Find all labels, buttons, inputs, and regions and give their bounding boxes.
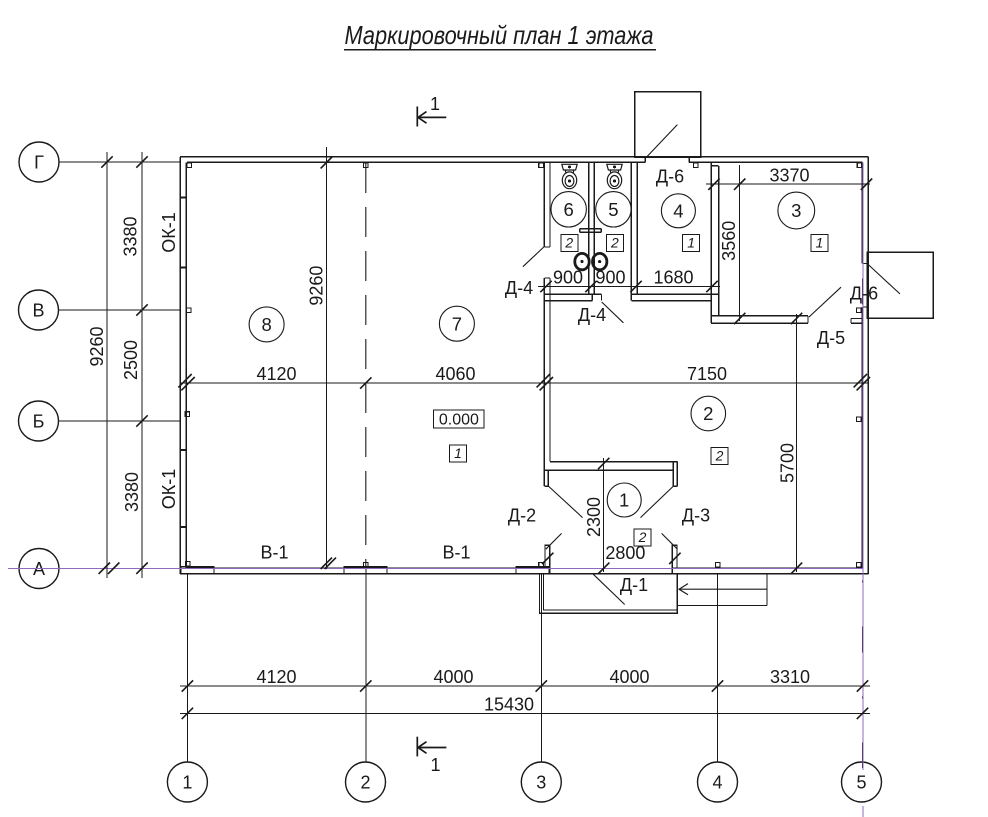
svg-text:1: 1 bbox=[430, 755, 440, 775]
svg-text:Г: Г bbox=[34, 153, 44, 173]
svg-text:4: 4 bbox=[712, 773, 722, 793]
svg-text:1: 1 bbox=[619, 490, 629, 511]
svg-text:1: 1 bbox=[816, 234, 824, 250]
svg-text:5700: 5700 bbox=[778, 443, 798, 483]
svg-text:1: 1 bbox=[430, 94, 440, 114]
svg-text:ОК-1: ОК-1 bbox=[159, 469, 179, 510]
svg-text:2: 2 bbox=[703, 403, 713, 424]
svg-text:Д-5: Д-5 bbox=[817, 328, 845, 348]
svg-text:Д-4: Д-4 bbox=[505, 278, 533, 298]
svg-text:7: 7 bbox=[452, 313, 462, 334]
svg-text:А: А bbox=[33, 559, 45, 579]
svg-text:2: 2 bbox=[638, 529, 647, 545]
svg-text:1: 1 bbox=[454, 445, 462, 461]
svg-text:4000: 4000 bbox=[609, 667, 649, 687]
svg-text:Д-6: Д-6 bbox=[850, 284, 878, 304]
svg-text:2: 2 bbox=[715, 448, 724, 464]
svg-text:5: 5 bbox=[856, 773, 866, 793]
svg-text:15430: 15430 bbox=[484, 695, 534, 715]
svg-text:900: 900 bbox=[553, 268, 583, 288]
svg-text:Д-1: Д-1 bbox=[620, 575, 648, 595]
svg-text:3380: 3380 bbox=[122, 472, 142, 512]
svg-text:5: 5 bbox=[608, 199, 618, 220]
svg-text:В: В bbox=[32, 301, 44, 321]
svg-text:3: 3 bbox=[791, 200, 801, 221]
svg-text:Д-2: Д-2 bbox=[508, 506, 536, 526]
svg-text:Д-3: Д-3 bbox=[682, 506, 710, 526]
svg-text:Д-4: Д-4 bbox=[578, 305, 606, 325]
svg-text:Б: Б bbox=[33, 412, 45, 432]
svg-text:9260: 9260 bbox=[307, 266, 327, 306]
svg-text:2: 2 bbox=[610, 234, 619, 250]
svg-text:1680: 1680 bbox=[653, 268, 693, 288]
svg-text:8: 8 bbox=[261, 314, 271, 335]
svg-text:3: 3 bbox=[536, 773, 546, 793]
svg-text:2300: 2300 bbox=[584, 497, 604, 537]
svg-text:7150: 7150 bbox=[687, 364, 727, 384]
svg-text:4000: 4000 bbox=[433, 667, 473, 687]
svg-text:0.000: 0.000 bbox=[439, 412, 479, 429]
svg-text:В-1: В-1 bbox=[260, 543, 288, 563]
svg-text:ОК-1: ОК-1 bbox=[159, 212, 179, 253]
svg-text:3370: 3370 bbox=[769, 166, 809, 186]
svg-text:2: 2 bbox=[564, 234, 573, 250]
svg-text:4: 4 bbox=[673, 200, 683, 221]
svg-text:3310: 3310 bbox=[770, 667, 810, 687]
svg-text:1: 1 bbox=[182, 773, 192, 793]
svg-text:900: 900 bbox=[595, 268, 625, 288]
svg-text:9260: 9260 bbox=[87, 326, 107, 366]
svg-text:4120: 4120 bbox=[256, 667, 296, 687]
svg-text:4120: 4120 bbox=[256, 364, 296, 384]
svg-text:1: 1 bbox=[687, 234, 695, 250]
svg-text:2: 2 bbox=[360, 773, 370, 793]
svg-text:В-1: В-1 bbox=[442, 543, 470, 563]
svg-text:2500: 2500 bbox=[121, 340, 141, 380]
svg-text:6: 6 bbox=[564, 199, 574, 220]
svg-text:3560: 3560 bbox=[719, 221, 739, 261]
svg-text:Д-6: Д-6 bbox=[656, 167, 684, 187]
svg-text:3380: 3380 bbox=[121, 216, 141, 256]
svg-text:4060: 4060 bbox=[435, 364, 475, 384]
svg-text:Маркировочный план 1 этажа: Маркировочный план 1 этажа bbox=[345, 20, 654, 50]
